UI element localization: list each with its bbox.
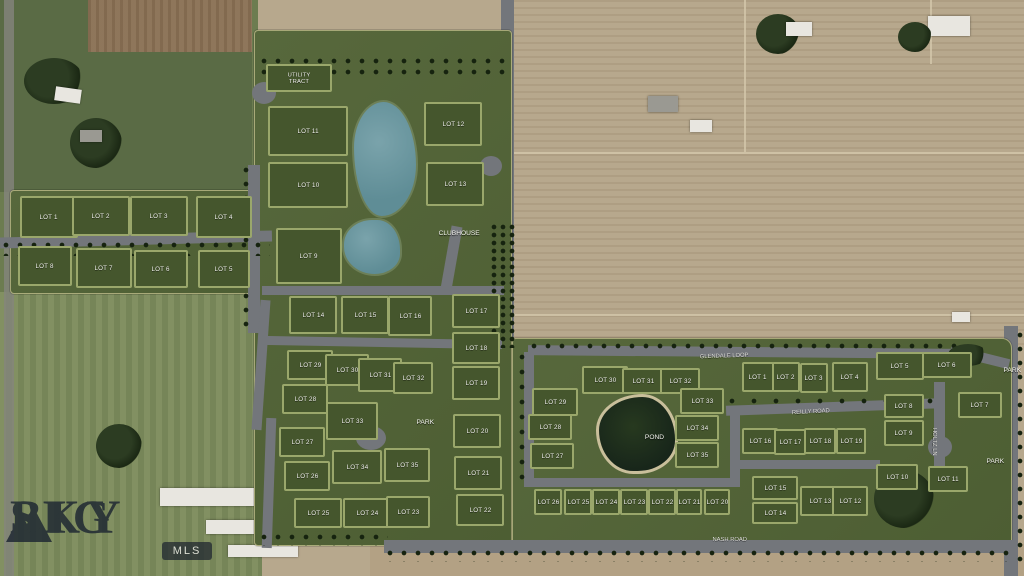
lot-east-lot-17: LOT 17 xyxy=(774,429,806,455)
lot-east-lot-12: LOT 12 xyxy=(832,486,868,516)
lot-central-lot-23: LOT 23 xyxy=(386,496,430,528)
lot-central-lot-11: LOT 11 xyxy=(268,106,348,156)
lot-central-lot-22: LOT 22 xyxy=(456,494,504,526)
lot-west-lot-7: LOT 7 xyxy=(76,248,132,288)
lot-west-lot-5: LOT 5 xyxy=(198,250,250,288)
lot-central-utility-tract: UTILITY TRACT xyxy=(266,64,332,92)
lot-central-lot-17: LOT 17 xyxy=(452,294,500,328)
watermark-word-sky: SKY xyxy=(10,494,127,542)
lot-central-lot-15: LOT 15 xyxy=(341,296,389,334)
lot-east-lot-3: LOT 3 xyxy=(800,363,828,393)
lot-east-lot-27: LOT 27 xyxy=(530,443,574,469)
lot-east-lot-10: LOT 10 xyxy=(876,464,918,490)
lot-east-lot-25: LOT 25 xyxy=(564,489,592,515)
lot-central-lot-9: LOT 9 xyxy=(276,228,342,284)
mls-badge: MLS xyxy=(162,542,212,560)
lot-east-lot-5: LOT 5 xyxy=(876,352,924,380)
lot-central-lot-13: LOT 13 xyxy=(426,162,484,206)
lot-central-lot-10: LOT 10 xyxy=(268,162,348,208)
lot-central-lot-19: LOT 19 xyxy=(452,366,500,400)
lot-east-lot-29: LOT 29 xyxy=(532,388,578,416)
watermark-text: BIG SKY xyxy=(10,506,50,542)
lot-central-lot-21: LOT 21 xyxy=(454,456,502,490)
lot-east-lot-35: LOT 35 xyxy=(675,442,719,468)
lot-central-lot-14: LOT 14 xyxy=(289,296,337,334)
lot-east-lot-24: LOT 24 xyxy=(592,489,620,515)
aerial-plat-map: LOT 1LOT 2LOT 3LOT 4LOT 8LOT 7LOT 6LOT 5… xyxy=(0,0,1024,576)
lot-east-lot-19: LOT 19 xyxy=(836,428,866,454)
lot-east-lot-14: LOT 14 xyxy=(752,502,798,524)
lot-central-lot-34: LOT 34 xyxy=(332,450,382,484)
lot-east-lot-20: LOT 20 xyxy=(704,489,730,515)
lot-east-lot-2: LOT 2 xyxy=(772,362,800,392)
lot-central-lot-25: LOT 25 xyxy=(294,498,342,528)
lot-central-lot-28: LOT 28 xyxy=(282,384,328,414)
lot-west-lot-8: LOT 8 xyxy=(18,246,72,286)
lot-west-lot-3: LOT 3 xyxy=(130,196,188,236)
lot-west-lot-4: LOT 4 xyxy=(196,196,252,238)
lot-east-lot-33: LOT 33 xyxy=(680,388,724,414)
lot-east-lot-7: LOT 7 xyxy=(958,392,1002,418)
big-sky-mls-watermark: BIG SKY MLS xyxy=(10,506,230,568)
lot-east-lot-16: LOT 16 xyxy=(742,428,778,454)
lot-east-lot-9: LOT 9 xyxy=(884,420,924,446)
lot-east-lot-18: LOT 18 xyxy=(804,428,836,454)
lot-east-lot-21: LOT 21 xyxy=(676,489,702,515)
lot-east-lot-22: LOT 22 xyxy=(648,489,676,515)
lot-central-lot-26: LOT 26 xyxy=(284,461,330,491)
lot-central-lot-16: LOT 16 xyxy=(388,296,432,336)
lot-east-lot-4: LOT 4 xyxy=(832,362,868,392)
lot-west-lot-2: LOT 2 xyxy=(72,196,130,236)
lot-east-lot-31: LOT 31 xyxy=(622,368,664,394)
lot-central-lot-35: LOT 35 xyxy=(384,448,430,482)
lot-east-lot-28: LOT 28 xyxy=(528,414,572,440)
lot-east-lot-11: LOT 11 xyxy=(928,466,968,492)
lot-central-lot-24: LOT 24 xyxy=(343,498,391,528)
lot-central-lot-18: LOT 18 xyxy=(452,332,500,364)
lot-east-lot-6: LOT 6 xyxy=(922,352,972,378)
lot-west-lot-1: LOT 1 xyxy=(20,196,78,238)
lot-east-lot-34: LOT 34 xyxy=(675,415,719,441)
lot-central-lot-32: LOT 32 xyxy=(393,362,433,394)
lot-east-lot-8: LOT 8 xyxy=(884,394,924,418)
lot-east-lot-23: LOT 23 xyxy=(620,489,648,515)
lot-west-lot-6: LOT 6 xyxy=(134,250,188,288)
lot-central-lot-27: LOT 27 xyxy=(279,427,325,457)
lot-central-lot-12: LOT 12 xyxy=(424,102,482,146)
lot-east-lot-26: LOT 26 xyxy=(534,489,562,515)
lot-east-lot-1: LOT 1 xyxy=(742,362,774,392)
lots-layer: LOT 1LOT 2LOT 3LOT 4LOT 8LOT 7LOT 6LOT 5… xyxy=(0,0,1024,576)
lot-central-lot-33: LOT 33 xyxy=(326,402,378,440)
lot-central-lot-20: LOT 20 xyxy=(453,414,501,448)
lot-east-lot-15: LOT 15 xyxy=(752,476,798,500)
